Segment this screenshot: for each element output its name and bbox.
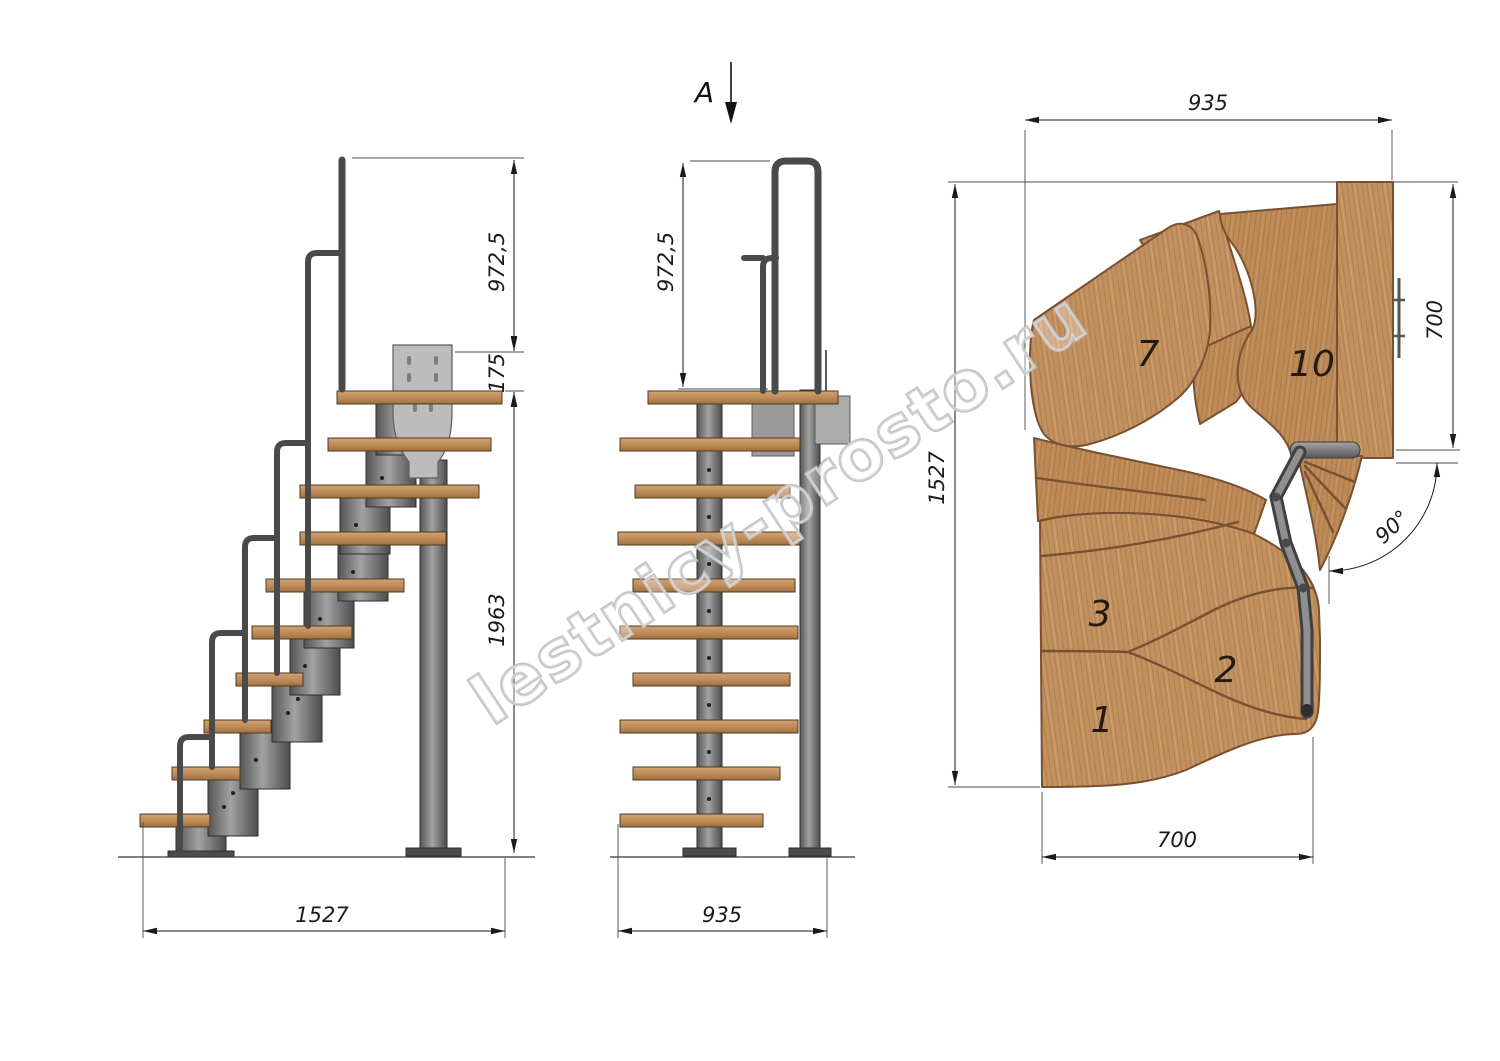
watermark-text: lestnicy-prosto.ru [458, 278, 1101, 741]
section-label: A [693, 76, 714, 109]
wall-bracket [1393, 278, 1405, 358]
tread-platform [337, 391, 502, 404]
plan-landing [1337, 182, 1393, 458]
tread-number-10: 10 [1289, 344, 1335, 385]
tread [266, 579, 404, 592]
dim-972-5: 972,5 [654, 232, 678, 292]
tread [633, 673, 790, 686]
dim-1527: 1527 [925, 451, 949, 505]
tread [648, 391, 838, 404]
support-column [420, 460, 447, 852]
tread [620, 814, 763, 827]
section-arrow-head [725, 102, 737, 124]
dim-935: 935 [702, 903, 742, 927]
column-base-plate [683, 848, 736, 856]
handrail-joint [1282, 539, 1291, 548]
tread-number-7: 7 [1137, 334, 1160, 375]
handrail-joint [1299, 584, 1308, 593]
section-cut-marker: A [693, 62, 737, 124]
plan-view: 7 10 3 2 1 935 1527 700 700 90° [925, 91, 1460, 864]
tread [633, 767, 780, 780]
dim-1527: 1527 [295, 903, 349, 927]
handrail-loop [775, 161, 818, 391]
column-base-plate [789, 848, 831, 856]
dim-90deg: 90° [1370, 505, 1414, 548]
front-handrail [744, 161, 818, 391]
column-base-plate [406, 848, 461, 856]
dim-972-5: 972,5 [485, 232, 509, 292]
tread [140, 814, 210, 827]
side-elevation-view: 972,5 175 1963 1527 [118, 158, 535, 938]
tread-number-2: 2 [1215, 650, 1238, 691]
tread [620, 438, 800, 451]
tread [328, 438, 491, 451]
dim-175: 175 [485, 353, 509, 393]
dim-700-right: 700 [1423, 300, 1447, 340]
tread-groove [1042, 651, 1128, 652]
handrail-end-cap [1301, 704, 1313, 716]
tread-number-1: 1 [1091, 700, 1114, 741]
drawing-canvas: 972,5 175 1963 1527 A [0, 0, 1500, 1061]
tread [300, 485, 479, 498]
handrail-joint [1272, 493, 1281, 502]
tread [620, 720, 798, 733]
dim-935: 935 [1188, 91, 1228, 115]
tread [300, 532, 446, 545]
dim-1963: 1963 [485, 593, 509, 646]
dim-700-bottom: 700 [1157, 828, 1197, 852]
tread [252, 626, 352, 639]
tread-number-3: 3 [1089, 594, 1112, 635]
